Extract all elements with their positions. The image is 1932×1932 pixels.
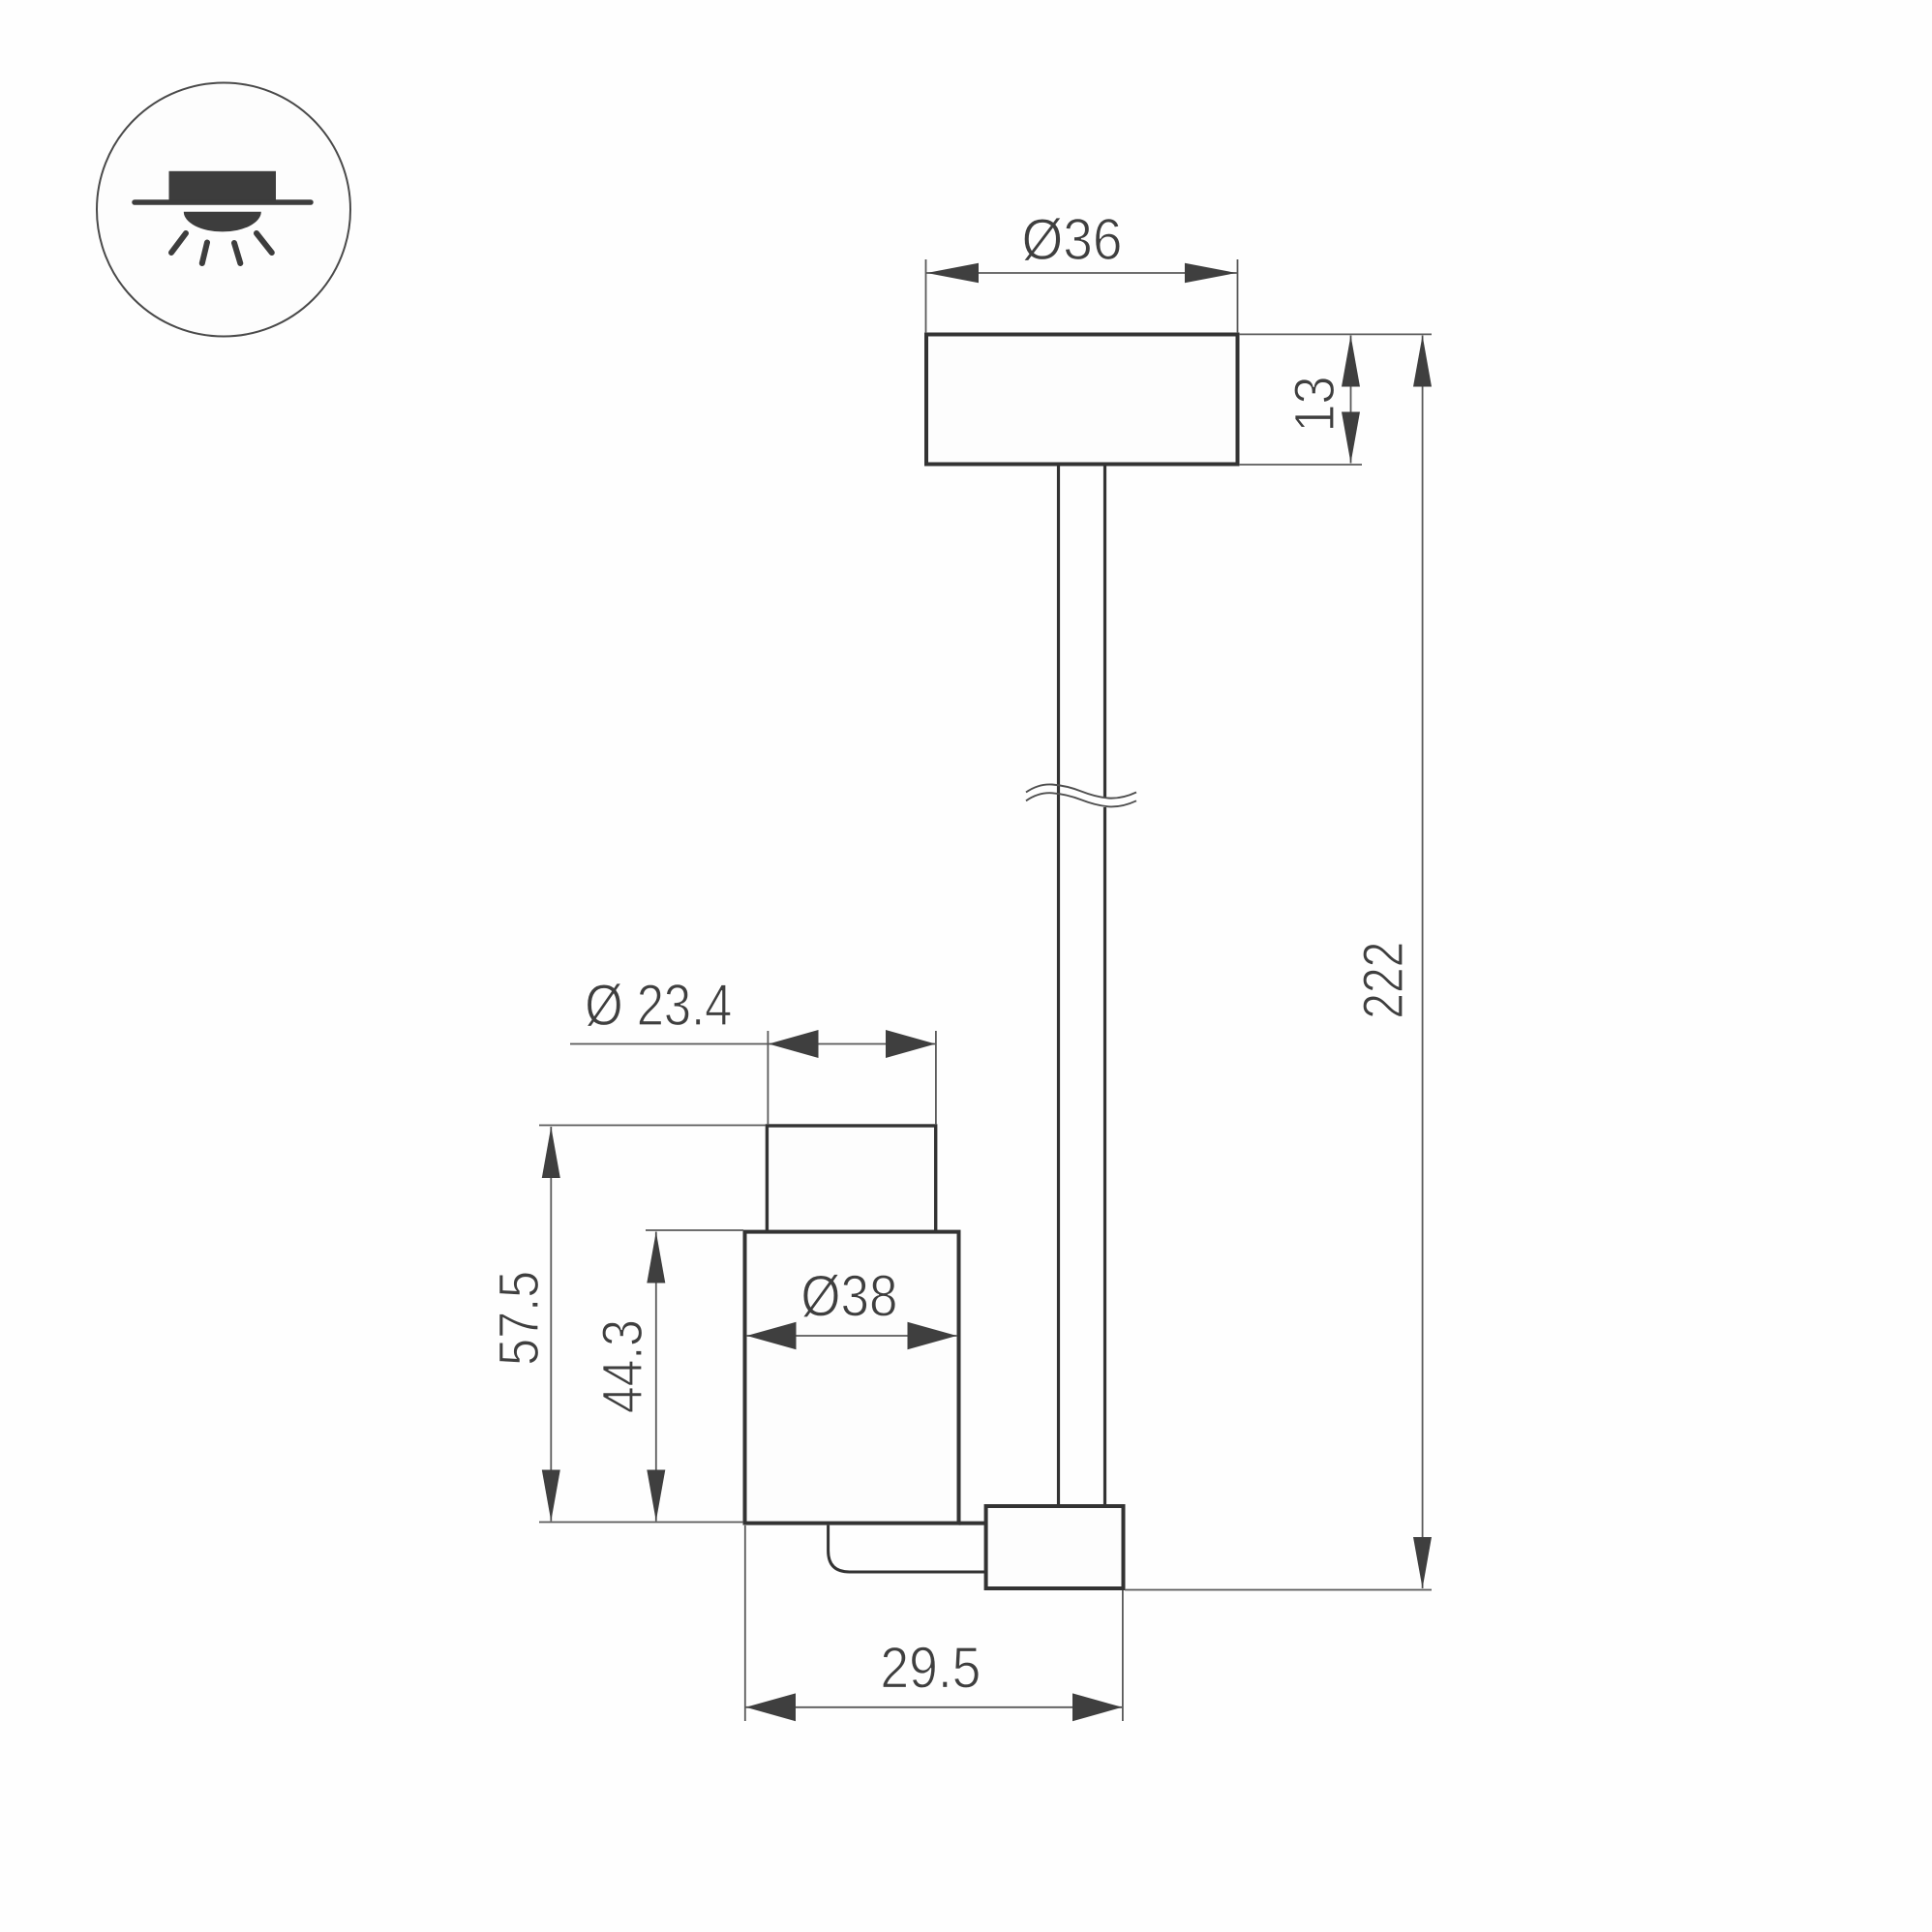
svg-text:Ø 23.4: Ø 23.4 xyxy=(585,973,732,1038)
svg-text:29.5: 29.5 xyxy=(880,1636,981,1701)
svg-text:Ø36: Ø36 xyxy=(1022,207,1123,272)
svg-text:57.5: 57.5 xyxy=(488,1271,551,1366)
svg-text:13: 13 xyxy=(1283,377,1346,433)
svg-text:Ø38: Ø38 xyxy=(800,1264,897,1329)
svg-text:44.3: 44.3 xyxy=(591,1319,654,1413)
svg-text:222: 222 xyxy=(1352,942,1415,1019)
